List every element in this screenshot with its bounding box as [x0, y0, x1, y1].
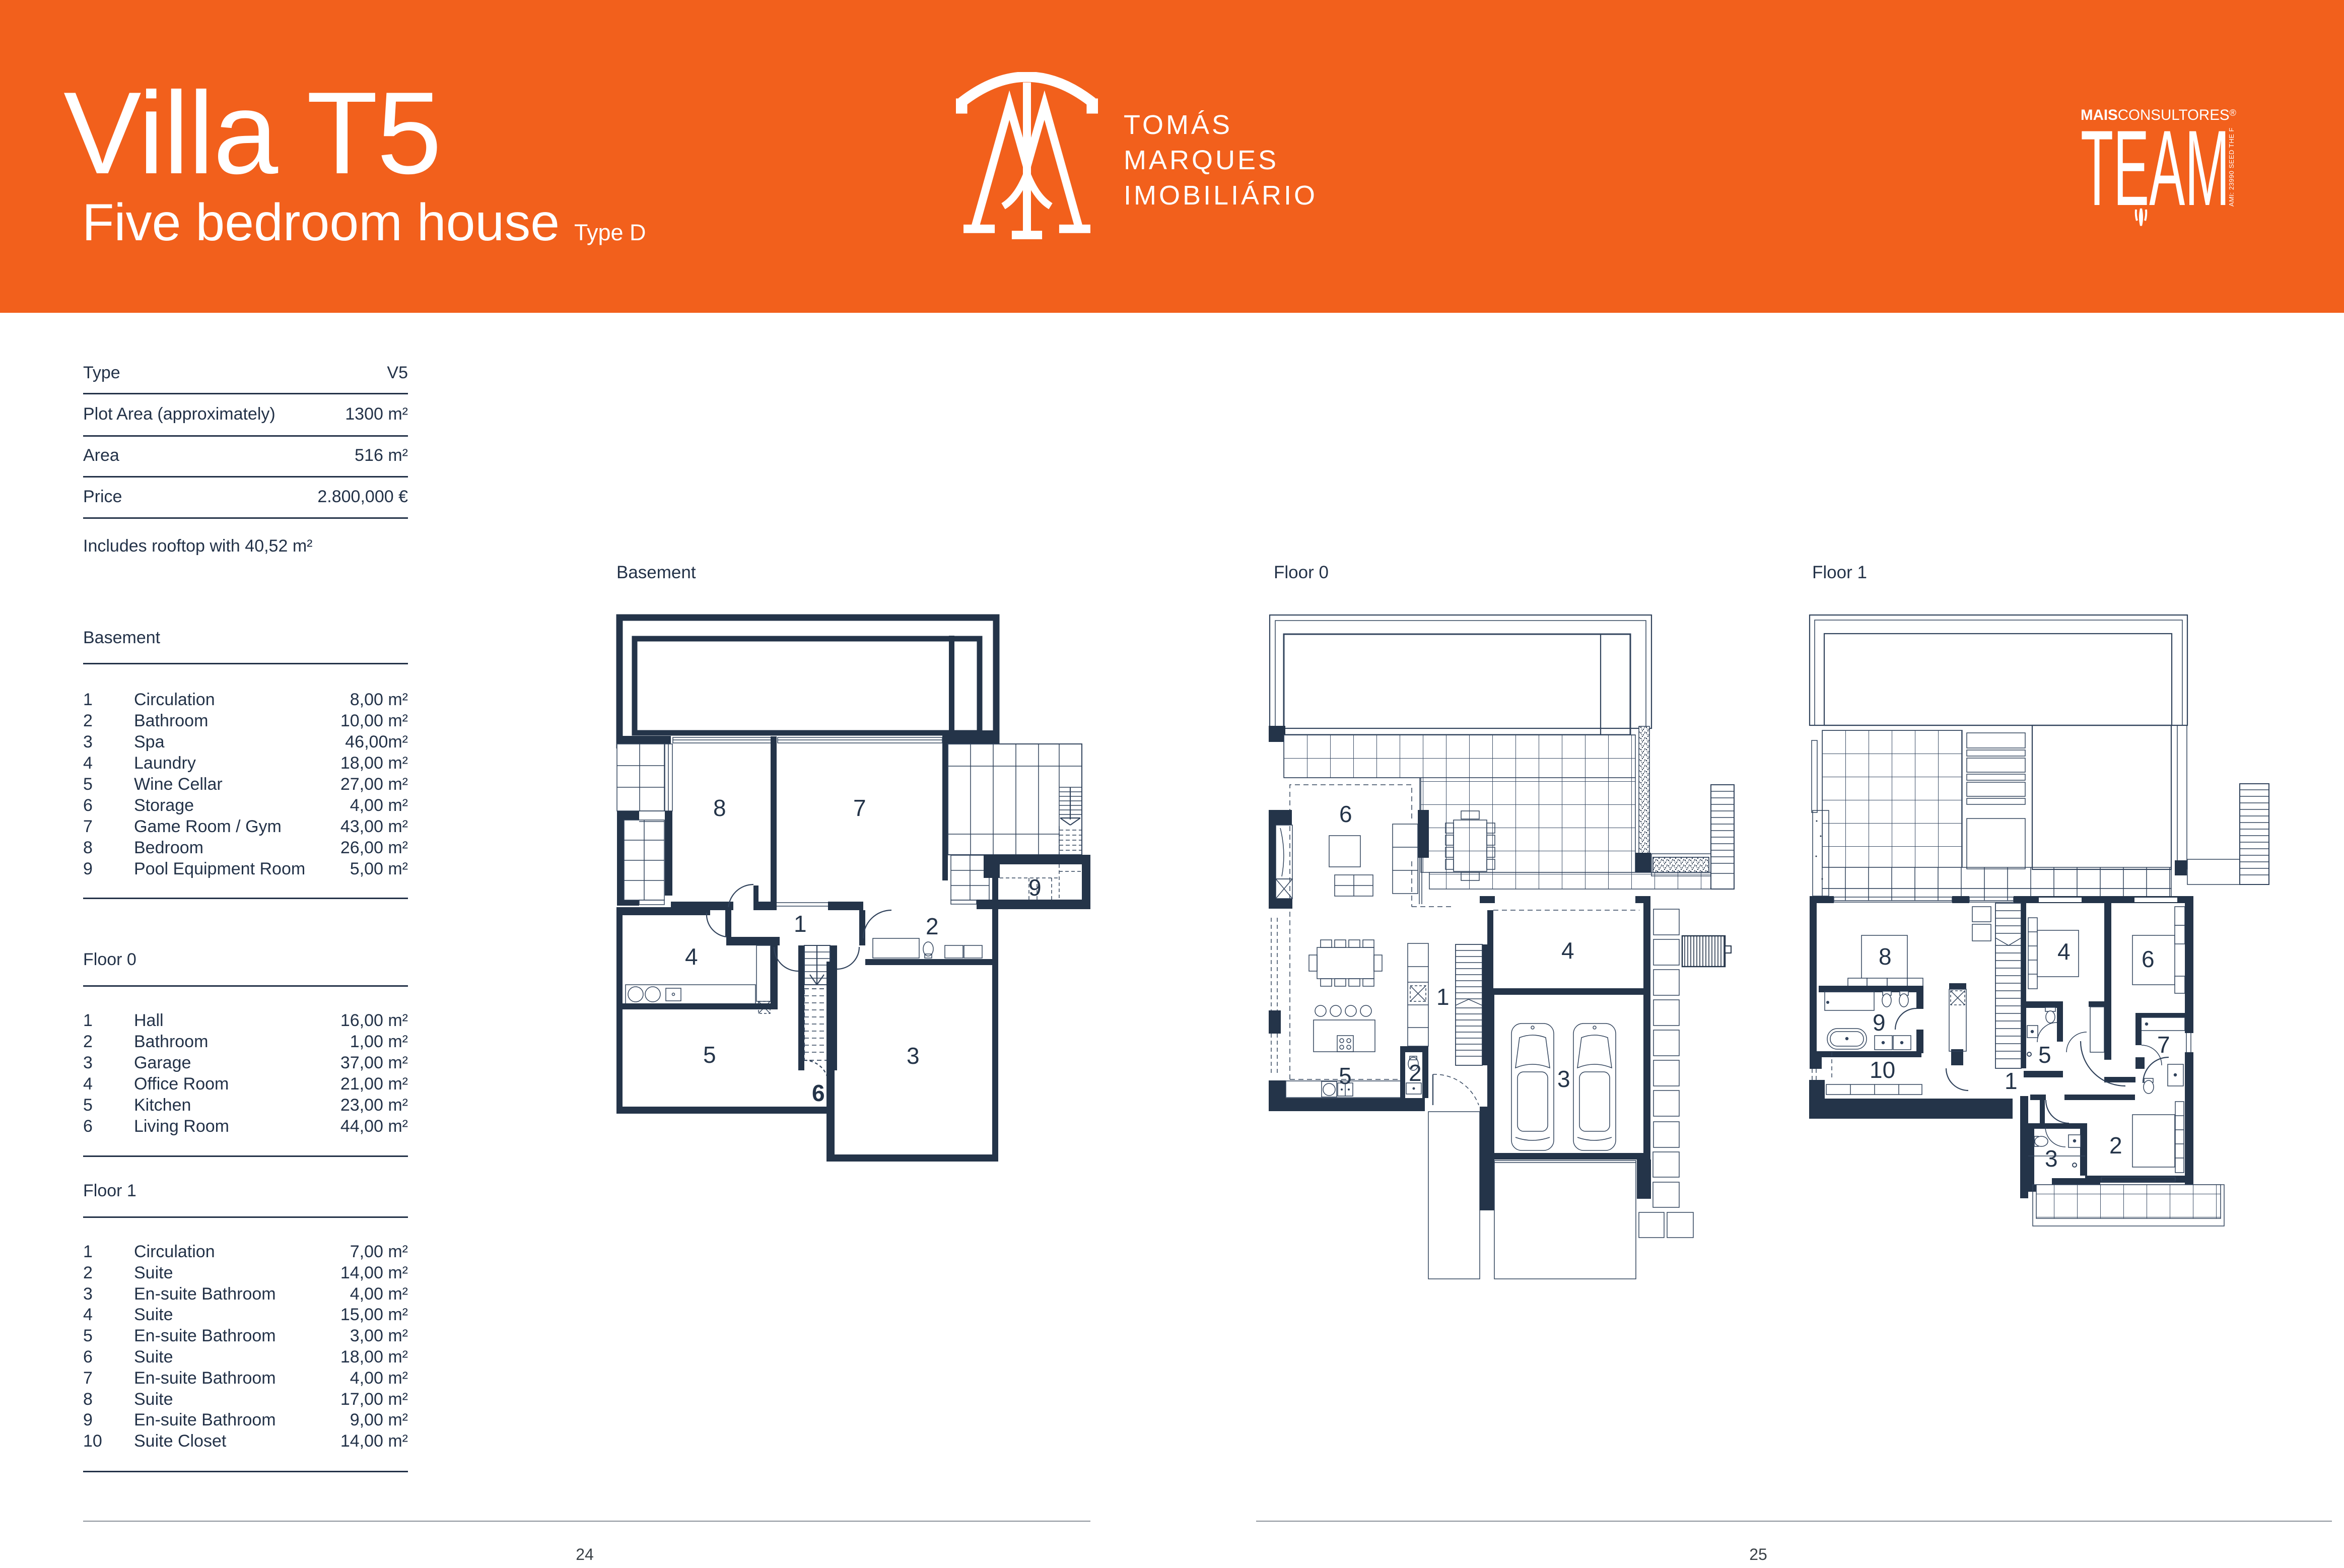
- svg-text:7: 7: [853, 795, 866, 821]
- svg-text:3: 3: [2045, 1145, 2058, 1172]
- svg-text:4: 4: [685, 943, 698, 970]
- svg-text:3: 3: [1557, 1066, 1570, 1092]
- svg-text:7: 7: [2157, 1032, 2170, 1058]
- svg-text:9: 9: [1028, 874, 1042, 901]
- svg-text:6: 6: [1339, 801, 1352, 827]
- svg-text:10: 10: [1870, 1057, 1895, 1083]
- svg-text:6: 6: [2142, 946, 2155, 972]
- svg-text:1: 1: [794, 911, 807, 937]
- svg-text:5: 5: [703, 1042, 716, 1068]
- svg-text:2: 2: [1409, 1060, 1422, 1086]
- svg-text:8: 8: [1879, 943, 1892, 970]
- svg-text:4: 4: [2057, 938, 2071, 965]
- svg-text:1: 1: [2005, 1068, 2018, 1094]
- svg-text:3: 3: [907, 1043, 920, 1069]
- svg-text:4: 4: [1561, 937, 1574, 964]
- svg-text:5: 5: [2038, 1042, 2051, 1068]
- svg-text:2: 2: [2109, 1132, 2122, 1158]
- svg-text:1: 1: [1436, 984, 1450, 1010]
- svg-text:6: 6: [812, 1080, 825, 1106]
- svg-text:TEAM: TEAM: [2081, 128, 2230, 228]
- svg-text:2: 2: [926, 913, 939, 939]
- svg-text:AMI: 23990 SEED THE FUTURE, L: AMI: 23990 SEED THE FUTURE, LDA.: [2228, 128, 2235, 207]
- svg-text:8: 8: [713, 795, 726, 821]
- svg-text:9: 9: [1873, 1009, 1886, 1036]
